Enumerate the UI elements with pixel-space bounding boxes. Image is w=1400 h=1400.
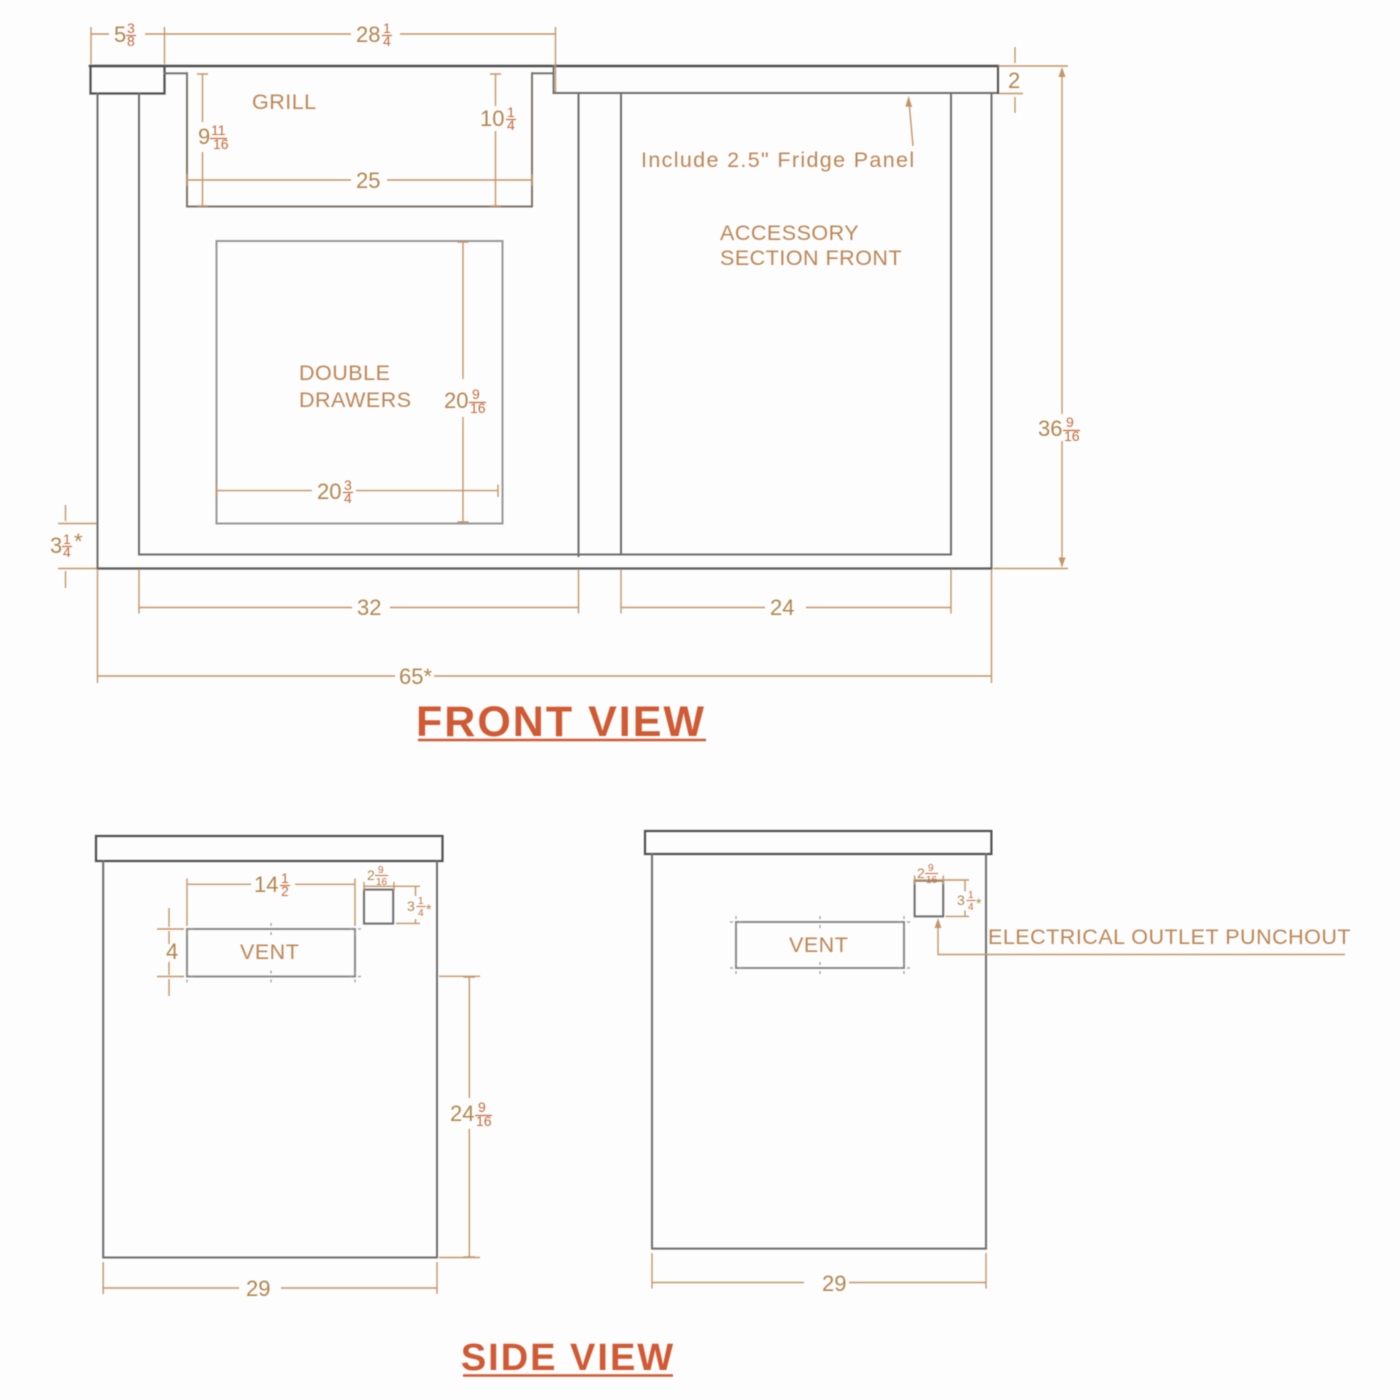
- svg-text:GRILL: GRILL: [252, 90, 317, 114]
- svg-text:*: *: [426, 901, 432, 917]
- svg-text:ACCESSORY: ACCESSORY: [720, 221, 859, 245]
- svg-text:5: 5: [114, 22, 126, 47]
- svg-text:20: 20: [444, 388, 468, 413]
- svg-text:20: 20: [317, 479, 341, 504]
- svg-text:9: 9: [928, 863, 934, 874]
- svg-text:4: 4: [418, 908, 424, 919]
- svg-text:4: 4: [166, 939, 178, 964]
- svg-text:VENT: VENT: [789, 933, 848, 957]
- svg-text:VENT: VENT: [240, 940, 299, 964]
- svg-text:2: 2: [367, 867, 375, 883]
- svg-text:24: 24: [770, 595, 794, 620]
- svg-text:28: 28: [356, 22, 380, 47]
- svg-text:65*: 65*: [399, 664, 432, 689]
- svg-text:9: 9: [378, 865, 384, 876]
- svg-text:4: 4: [968, 902, 974, 913]
- svg-text:10: 10: [480, 106, 504, 131]
- svg-text:32: 32: [357, 595, 381, 620]
- svg-text:3: 3: [957, 892, 965, 908]
- svg-text:36: 36: [1038, 416, 1062, 441]
- svg-text:24: 24: [450, 1101, 474, 1126]
- svg-text:16: 16: [376, 877, 388, 888]
- svg-text:DOUBLE: DOUBLE: [299, 361, 390, 385]
- svg-text:2: 2: [917, 865, 925, 881]
- svg-text:*: *: [976, 895, 982, 911]
- svg-text:SECTION FRONT: SECTION FRONT: [720, 246, 902, 270]
- svg-text:1: 1: [968, 890, 974, 901]
- svg-text:Include 2.5" Fridge Panel: Include 2.5" Fridge Panel: [641, 148, 915, 172]
- svg-text:25: 25: [356, 168, 380, 193]
- svg-text:29: 29: [246, 1276, 270, 1301]
- svg-text:3: 3: [407, 898, 415, 914]
- svg-text:2: 2: [1008, 68, 1020, 93]
- svg-text:*: *: [74, 529, 83, 554]
- svg-text:1: 1: [418, 896, 424, 907]
- svg-text:SIDE VIEW: SIDE VIEW: [461, 1337, 675, 1379]
- svg-text:DRAWERS: DRAWERS: [299, 388, 412, 412]
- svg-text:3: 3: [50, 533, 62, 558]
- svg-text:29: 29: [822, 1271, 846, 1296]
- svg-text:16: 16: [926, 875, 938, 886]
- svg-text:9: 9: [198, 124, 210, 149]
- svg-text:14: 14: [254, 872, 278, 897]
- svg-text:ELECTRICAL OUTLET PUNCHOUT: ELECTRICAL OUTLET PUNCHOUT: [988, 925, 1351, 949]
